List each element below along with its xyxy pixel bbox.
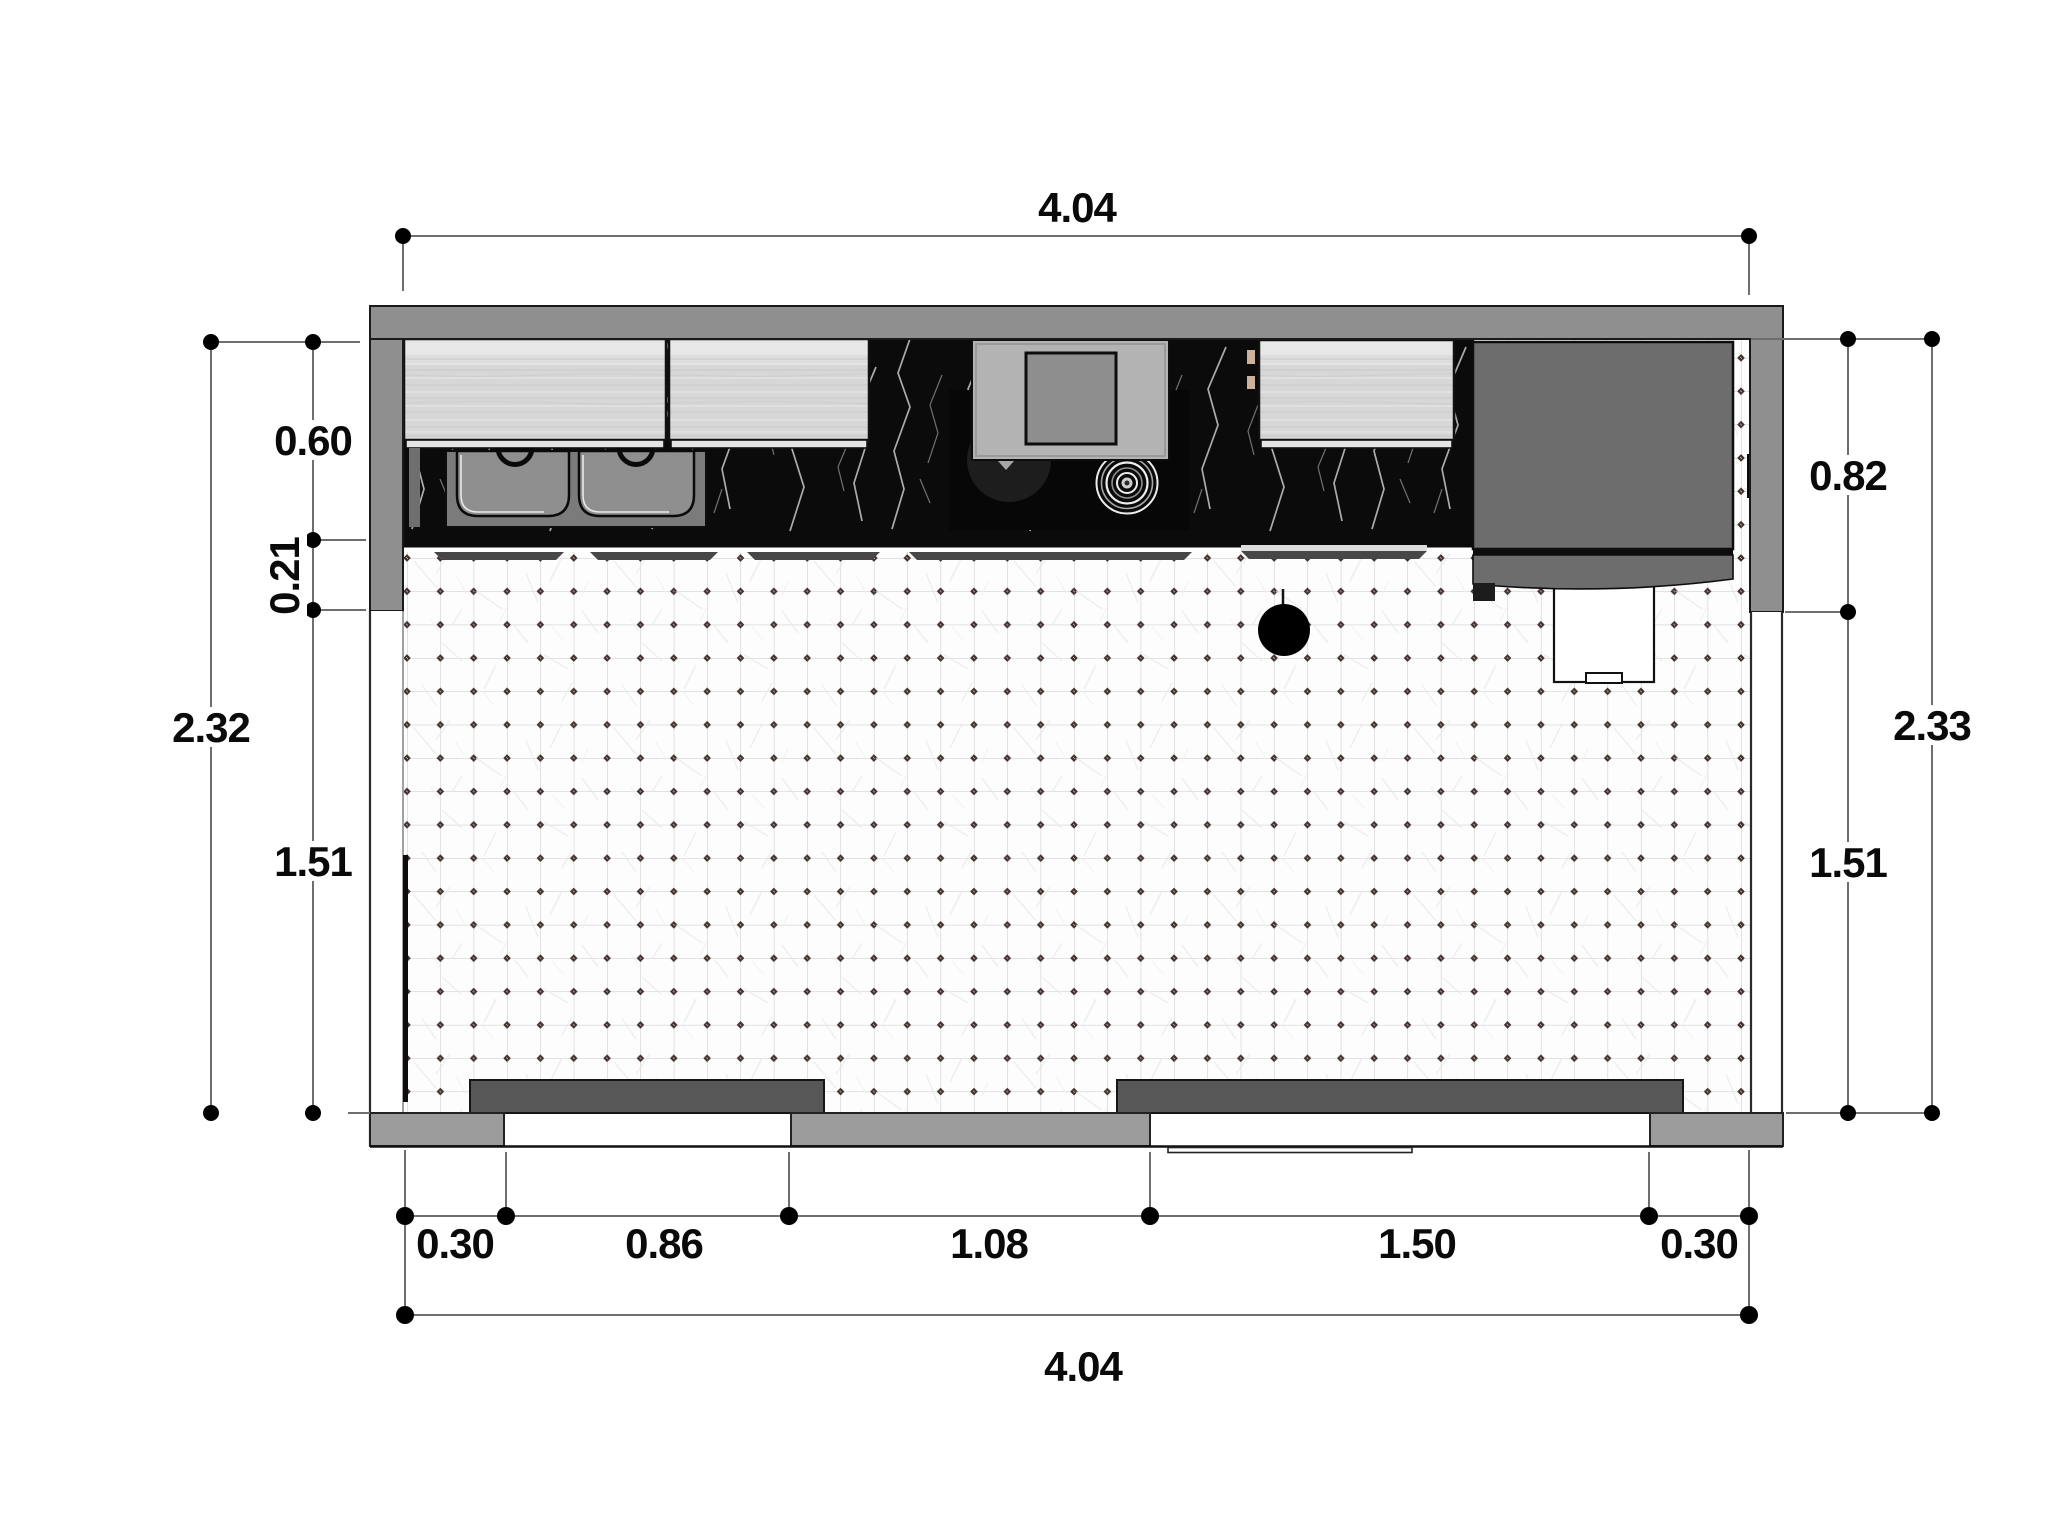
- svg-text:2.33: 2.33: [1893, 702, 1971, 749]
- svg-text:4.04: 4.04: [1038, 184, 1117, 231]
- svg-text:1.51: 1.51: [1809, 839, 1887, 886]
- svg-text:1.51: 1.51: [274, 838, 352, 885]
- svg-text:0.21: 0.21: [261, 536, 308, 614]
- svg-text:0.60: 0.60: [274, 417, 352, 464]
- svg-text:0.82: 0.82: [1809, 452, 1887, 499]
- svg-text:1.08: 1.08: [950, 1220, 1028, 1267]
- svg-text:0.30: 0.30: [416, 1220, 494, 1267]
- svg-text:0.86: 0.86: [625, 1220, 703, 1267]
- svg-text:1.50: 1.50: [1378, 1220, 1456, 1267]
- svg-text:0.30: 0.30: [1660, 1220, 1738, 1267]
- svg-text:2.32: 2.32: [172, 704, 250, 751]
- svg-text:4.04: 4.04: [1044, 1343, 1123, 1390]
